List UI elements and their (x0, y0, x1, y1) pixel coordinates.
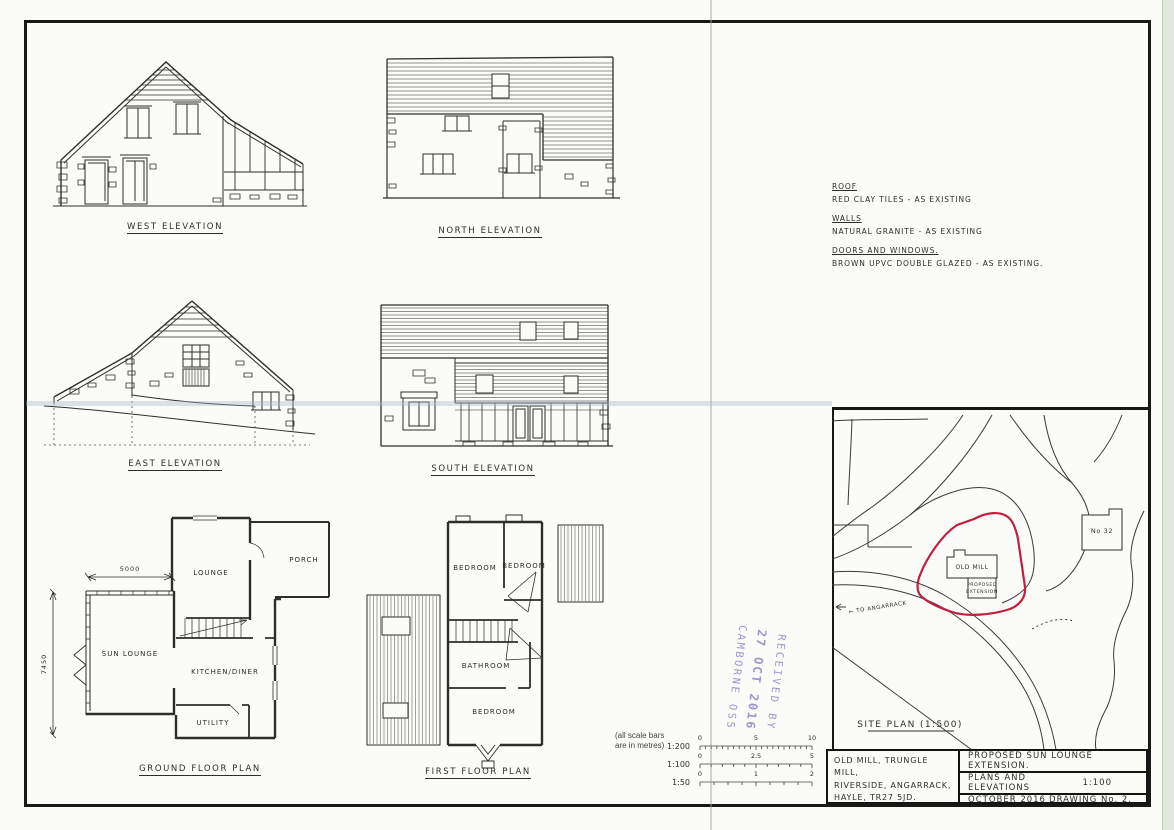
scale-ratio-100: 1:100 (667, 760, 690, 769)
note-walls: WALLS NATURAL GRANITE - AS EXISTING (832, 214, 1138, 237)
dim-sun-lounge-depth: 7450 (40, 654, 48, 675)
scale-50-start: 0 (698, 770, 702, 778)
note-doors-text: BROWN UPVC DOUBLE GLAZED - AS EXISTING. (832, 259, 1138, 270)
site-plan-title: SITE PLAN (1:500) (857, 720, 963, 730)
address-line1: OLD MILL, TRUNGLE MILL, (834, 755, 952, 780)
north-elevation-drawing (375, 48, 625, 208)
room-label-bedroom-1: BEDROOM (453, 564, 497, 572)
scale-ratio-200: 1:200 (667, 742, 690, 751)
scale-200-end: 10 (808, 734, 816, 742)
paper-fold-horizontal (26, 401, 832, 406)
first-floor-plan-drawing: BEDROOM BEDROOM BATHROOM BEDROOM (358, 500, 628, 800)
scale-50-end: 2 (810, 770, 814, 778)
scale-100-mid: 2.5 (751, 752, 761, 760)
note-roof: ROOF RED CLAY TILES - AS EXISTING (832, 182, 1138, 205)
old-mill-label: OLD MILL (955, 564, 988, 571)
drawing-scale: 1:100 (1083, 778, 1113, 788)
title-block-address: OLD MILL, TRUNGLE MILL, RIVERSIDE, ANGAR… (828, 751, 960, 802)
room-label-bathroom: BATHROOM (462, 662, 511, 670)
road-to-angarrack-label: ← TO ANGARRACK (848, 600, 907, 615)
dim-sun-lounge-width: 5000 (120, 565, 141, 573)
material-notes: ROOF RED CLAY TILES - AS EXISTING WALLS … (832, 182, 1138, 278)
title-block-sheet-row: PLANS AND ELEVATIONS 1:100 (960, 771, 1146, 793)
room-label-lounge: LOUNGE (193, 569, 228, 577)
ground-floor-plan-drawing: 5000 7450 LOUNGE PORCH SUN LOUNGE KITCHE… (35, 498, 355, 798)
address-line2: RIVERSIDE, ANGARRACK, (834, 780, 952, 792)
paper-fold-vertical (710, 0, 712, 830)
room-label-bedroom-3: BEDROOM (472, 708, 516, 716)
west-elevation-drawing (45, 48, 315, 233)
note-roof-heading: ROOF (832, 182, 1138, 193)
proposed-extension-outline (968, 578, 996, 598)
neighbour-label: No 32 (1091, 527, 1113, 535)
note-walls-heading: WALLS (832, 214, 1138, 225)
north-elevation-title: NORTH ELEVATION (425, 226, 555, 236)
room-label-utility: UTILITY (197, 719, 230, 727)
site-plan-drawing: OLD MILL PROPOSED EXTENSION No 32 ← TO A… (832, 407, 1148, 750)
scanned-drawing-sheet: WEST ELEVATION NORTH ELEVATION (0, 0, 1174, 830)
east-elevation-title: EAST ELEVATION (110, 459, 240, 469)
west-elevation-title: WEST ELEVATION (110, 222, 240, 232)
title-block-project-row: PROPOSED SUN LOUNGE EXTENSION. (960, 751, 1146, 771)
scale-100-start: 0 (698, 752, 702, 760)
title-block-date-row: OCTOBER 2016 DRAWING No. 2. (960, 793, 1146, 805)
east-elevation-drawing (40, 293, 320, 468)
proposed-extension-label-line2: EXTENSION (966, 589, 998, 595)
note-doors-heading: DOORS AND WINDOWS. (832, 246, 1138, 257)
sheet-title: PLANS AND ELEVATIONS (968, 773, 1083, 793)
project-title: PROPOSED SUN LOUNGE EXTENSION. (968, 751, 1138, 771)
note-roof-text: RED CLAY TILES - AS EXISTING (832, 195, 1138, 206)
drawing-number: DRAWING No. 2. (1049, 795, 1132, 805)
scale-50-mid: 1 (754, 770, 758, 778)
note-walls-text: NATURAL GRANITE - AS EXISTING (832, 227, 1138, 238)
drawing-date: OCTOBER 2016 (968, 795, 1046, 805)
first-floor-plan-title: FIRST FLOOR PLAN (408, 767, 548, 777)
south-elevation-title: SOUTH ELEVATION (418, 464, 548, 474)
ground-floor-plan-title: GROUND FLOOR PLAN (135, 764, 265, 774)
room-label-porch: PORCH (289, 556, 318, 564)
scanner-edge-strip (1162, 0, 1174, 830)
title-block: OLD MILL, TRUNGLE MILL, RIVERSIDE, ANGAR… (826, 749, 1148, 804)
proposed-extension-label-line1: PROPOSED (967, 582, 997, 588)
address-line3: HAYLE, TR27 5JD. (834, 792, 952, 804)
note-doors-windows: DOORS AND WINDOWS. BROWN UPVC DOUBLE GLA… (832, 246, 1138, 269)
room-label-kitchen-diner: KITCHEN/DINER (191, 668, 259, 676)
scale-ratio-50: 1:50 (672, 778, 690, 787)
scale-100-end: 5 (810, 752, 814, 760)
room-label-sun-lounge: SUN LOUNGE (102, 650, 158, 658)
room-label-bedroom-2: BEDROOM (502, 562, 546, 570)
south-elevation-drawing (373, 298, 623, 463)
